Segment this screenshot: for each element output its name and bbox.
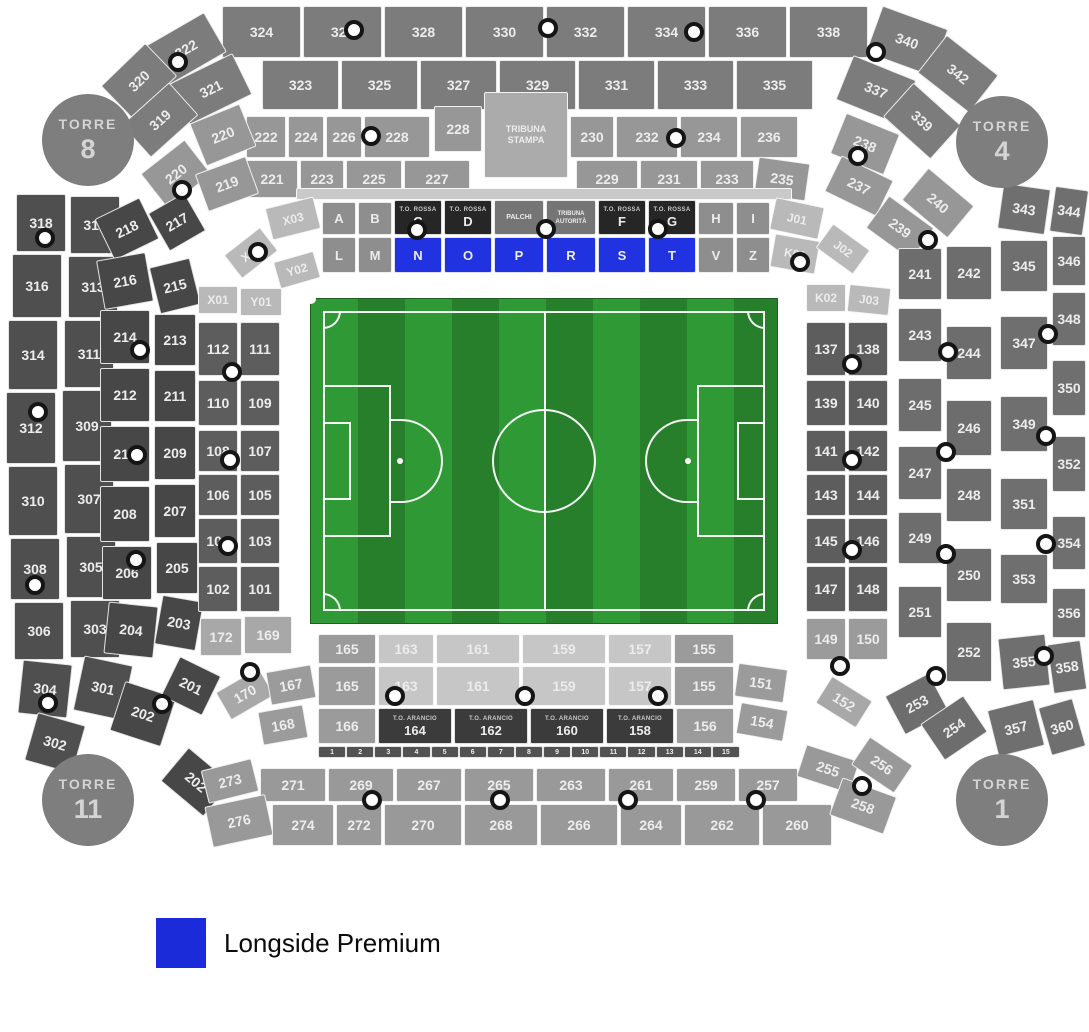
section-251[interactable]: 251 <box>898 586 942 638</box>
gate-marker-icon <box>1036 426 1056 446</box>
section-168[interactable]: 168 <box>257 704 308 745</box>
gate-marker-icon <box>35 228 55 248</box>
section-label: 140 <box>856 396 879 410</box>
section-102[interactable]: 102 <box>198 566 238 612</box>
section-label: 208 <box>113 507 136 521</box>
section-234[interactable]: 234 <box>680 116 738 158</box>
section-262[interactable]: 262 <box>684 804 760 846</box>
section-label: T <box>668 249 676 262</box>
section-335[interactable]: 335 <box>736 60 813 110</box>
section-152[interactable]: 152 <box>815 676 873 729</box>
section-label: 204 <box>119 622 144 638</box>
section-label: 309 <box>75 419 98 433</box>
section-label: 236 <box>757 130 780 144</box>
section-label: 166 <box>335 719 358 733</box>
section-label: 261 <box>629 778 652 792</box>
section-159[interactable]: 159 <box>522 634 606 664</box>
section-label: 270 <box>411 818 434 832</box>
section-x01[interactable]: X01 <box>198 286 238 314</box>
section-label: 157 <box>628 642 651 656</box>
gate-marker-icon <box>866 42 886 62</box>
strip-cell-12[interactable]: 12 <box>627 746 655 758</box>
gate-marker-icon <box>842 540 862 560</box>
section-172[interactable]: 172 <box>200 618 242 656</box>
strip-cell-6[interactable]: 6 <box>459 746 487 758</box>
section-label: J01 <box>786 211 808 227</box>
section-label: 224 <box>294 130 317 144</box>
section-label: 266 <box>567 818 590 832</box>
section-label: 156 <box>693 719 716 733</box>
section-label: 252 <box>957 645 980 659</box>
section-161[interactable]: 161 <box>436 634 520 664</box>
section-label: 138 <box>856 342 879 356</box>
section-271[interactable]: 271 <box>260 768 326 802</box>
section-label: S <box>618 249 627 262</box>
section-147[interactable]: 147 <box>806 566 846 612</box>
section-y02[interactable]: Y02 <box>273 251 321 289</box>
section-155[interactable]: 155 <box>674 666 734 706</box>
penalty-spot-left <box>397 458 403 464</box>
section-248[interactable]: 248 <box>946 468 992 522</box>
section-241[interactable]: 241 <box>898 248 942 300</box>
section-351[interactable]: 351 <box>1000 478 1048 530</box>
strip-cell-3[interactable]: 3 <box>374 746 402 758</box>
strip-cell-1[interactable]: 1 <box>318 746 346 758</box>
section-326[interactable]: 326 <box>303 6 382 58</box>
section-label: F <box>618 215 626 228</box>
section-label: 256 <box>868 753 895 778</box>
gate-marker-icon <box>666 128 686 148</box>
section-label: 243 <box>908 328 931 342</box>
section-label: 201 <box>177 675 204 698</box>
section-111[interactable]: 111 <box>240 322 280 376</box>
section-label: 305 <box>79 560 102 574</box>
section-label: 358 <box>1054 658 1079 675</box>
section-j02[interactable]: J02 <box>816 223 871 274</box>
section-224[interactable]: 224 <box>288 116 324 158</box>
section-264[interactable]: 264 <box>620 804 682 846</box>
section-160[interactable]: T.O. ARANCIO160 <box>530 708 604 744</box>
section-356[interactable]: 356 <box>1052 588 1086 638</box>
gate-marker-icon <box>25 575 45 595</box>
walkway <box>296 188 792 200</box>
section-label: 220 <box>210 124 237 146</box>
section-203[interactable]: 203 <box>154 595 204 652</box>
section-n[interactable]: N <box>394 237 442 273</box>
center-circle <box>492 409 596 513</box>
section-211[interactable]: 211 <box>154 370 196 422</box>
section-324[interactable]: 324 <box>222 6 301 58</box>
section-label: B <box>370 212 379 225</box>
section-t[interactable]: T <box>648 237 696 273</box>
section-label: 155 <box>692 642 715 656</box>
section-label: 311 <box>78 347 101 361</box>
section-158[interactable]: T.O. ARANCIO158 <box>606 708 674 744</box>
section-label: 145 <box>814 534 837 548</box>
strip-number: 7 <box>499 749 503 756</box>
section-label: 344 <box>1056 202 1081 219</box>
section-label: 233 <box>715 172 738 186</box>
section-caption: T.O. ROSSA <box>653 207 690 213</box>
section-y01[interactable]: Y01 <box>240 288 282 316</box>
section-325[interactable]: 325 <box>341 60 418 110</box>
section-215[interactable]: 215 <box>149 258 201 315</box>
strip-number: 5 <box>443 749 447 756</box>
section-s[interactable]: S <box>598 237 646 273</box>
section-336[interactable]: 336 <box>708 6 787 58</box>
torre-number: 4 <box>994 136 1009 167</box>
strip-cell-7[interactable]: 7 <box>487 746 515 758</box>
gate-marker-icon <box>28 402 48 422</box>
section-label: 144 <box>856 488 879 502</box>
section-345[interactable]: 345 <box>1000 240 1048 292</box>
section-352[interactable]: 352 <box>1052 436 1086 492</box>
section-label: 325 <box>368 78 391 92</box>
section-label: 147 <box>814 582 837 596</box>
section-323[interactable]: 323 <box>262 60 339 110</box>
section-label: 165 <box>335 642 358 656</box>
section-label: 267 <box>417 778 440 792</box>
gate-marker-icon <box>790 252 810 272</box>
strip-cell-11[interactable]: 11 <box>599 746 627 758</box>
section-306[interactable]: 306 <box>14 602 64 660</box>
strip-cell-9[interactable]: 9 <box>543 746 571 758</box>
section-101[interactable]: 101 <box>240 566 280 612</box>
section-label: 160 <box>556 724 578 737</box>
section-151[interactable]: 151 <box>734 663 788 704</box>
strip-cell-8[interactable]: 8 <box>515 746 543 758</box>
section-143[interactable]: 143 <box>806 474 846 516</box>
section-label: 164 <box>404 724 426 737</box>
section-h[interactable]: H <box>698 202 734 235</box>
strip-cell-2[interactable]: 2 <box>346 746 374 758</box>
section-274[interactable]: 274 <box>272 804 334 846</box>
section-343[interactable]: 343 <box>997 183 1051 235</box>
section-140[interactable]: 140 <box>848 380 888 426</box>
section-label: 262 <box>710 818 733 832</box>
section-label: 232 <box>635 130 658 144</box>
torre-4: TORRE4 <box>956 96 1048 188</box>
strip-cell-14[interactable]: 14 <box>684 746 712 758</box>
section-l[interactable]: L <box>322 237 356 273</box>
section-259[interactable]: 259 <box>676 768 736 802</box>
section-label: 250 <box>957 568 980 582</box>
section-label: 259 <box>694 778 717 792</box>
section-347[interactable]: 347 <box>1000 316 1048 370</box>
gate-marker-icon <box>936 442 956 462</box>
section-103[interactable]: 103 <box>240 518 280 564</box>
section-208[interactable]: 208 <box>100 486 150 542</box>
section-269[interactable]: 269 <box>328 768 394 802</box>
section-154[interactable]: 154 <box>736 702 789 742</box>
section-label: 327 <box>447 78 470 92</box>
section-label: 310 <box>21 494 44 508</box>
section-316[interactable]: 316 <box>12 254 62 318</box>
section-159[interactable]: 159 <box>522 666 606 706</box>
section-tribuna-stampa[interactable]: TRIBUNASTAMPA <box>484 92 568 178</box>
gate-marker-icon <box>222 362 242 382</box>
section-162[interactable]: T.O. ARANCIO162 <box>454 708 528 744</box>
section-216[interactable]: 216 <box>96 252 154 310</box>
section-label: X01 <box>207 294 228 306</box>
section-label: 102 <box>206 582 229 596</box>
gate-marker-icon <box>130 340 150 360</box>
section-270[interactable]: 270 <box>384 804 462 846</box>
section-165[interactable]: 165 <box>318 634 376 664</box>
section-label: 329 <box>526 78 549 92</box>
section-label: J03 <box>858 293 879 307</box>
section-252[interactable]: 252 <box>946 622 992 682</box>
strip-cell-13[interactable]: 13 <box>656 746 684 758</box>
strip-number: 15 <box>722 749 730 756</box>
section-155[interactable]: 155 <box>674 634 734 664</box>
section-label: 149 <box>814 632 837 646</box>
section-236[interactable]: 236 <box>740 116 798 158</box>
section-label: 162 <box>480 724 502 737</box>
section-314[interactable]: 314 <box>8 320 58 390</box>
section-label: 273 <box>217 771 243 790</box>
section-label: 339 <box>909 108 936 134</box>
section-label: 350 <box>1057 381 1080 395</box>
section-228[interactable]: 228 <box>434 106 482 152</box>
section-109[interactable]: 109 <box>240 380 280 426</box>
section-163[interactable]: 163 <box>378 634 434 664</box>
section-346[interactable]: 346 <box>1052 236 1086 286</box>
section-350[interactable]: 350 <box>1052 360 1086 416</box>
gate-marker-icon <box>362 790 382 810</box>
section-105[interactable]: 105 <box>240 474 280 516</box>
section-d[interactable]: T.O. ROSSAD <box>444 200 492 235</box>
section-204[interactable]: 204 <box>103 602 158 659</box>
strip-number: 3 <box>386 749 390 756</box>
section-label: AUTORITÀ <box>556 219 587 225</box>
gate-marker-icon <box>938 342 958 362</box>
gate-marker-icon <box>848 146 868 166</box>
section-107[interactable]: 107 <box>240 430 280 472</box>
gate-marker-icon <box>618 790 638 810</box>
section-328[interactable]: 328 <box>384 6 463 58</box>
section-330[interactable]: 330 <box>465 6 544 58</box>
section-166[interactable]: 166 <box>318 708 376 744</box>
section-label: 228 <box>446 122 469 136</box>
strip-cell-10[interactable]: 10 <box>571 746 599 758</box>
section-label: 312 <box>19 421 42 435</box>
section-213[interactable]: 213 <box>154 314 196 366</box>
section-267[interactable]: 267 <box>396 768 462 802</box>
section-169[interactable]: 169 <box>244 616 292 654</box>
section-354[interactable]: 354 <box>1052 516 1086 570</box>
section-358[interactable]: 358 <box>1047 640 1088 694</box>
section-141[interactable]: 141 <box>806 430 846 472</box>
legend: Longside Premium <box>156 918 441 968</box>
section-label: 105 <box>248 488 271 502</box>
section-label: 333 <box>684 78 707 92</box>
section-label: 241 <box>908 267 931 281</box>
section-353[interactable]: 353 <box>1000 554 1048 604</box>
gate-marker-icon <box>1036 534 1056 554</box>
section-157[interactable]: 157 <box>608 634 672 664</box>
section-label: 215 <box>162 276 188 295</box>
section-label: 222 <box>254 130 277 144</box>
section-266[interactable]: 266 <box>540 804 618 846</box>
section-label: 161 <box>466 679 489 693</box>
gate-marker-icon <box>746 790 766 810</box>
section-243[interactable]: 243 <box>898 308 942 362</box>
section-label: 301 <box>90 679 116 698</box>
section-label: A <box>334 212 343 225</box>
section-226[interactable]: 226 <box>326 116 362 158</box>
torre-label: TORRE <box>973 776 1032 792</box>
section-label: K02 <box>815 292 837 304</box>
section-357[interactable]: 357 <box>987 699 1045 757</box>
section-label: 101 <box>248 582 271 596</box>
torre-number: 11 <box>74 794 103 825</box>
section-label: 340 <box>894 30 921 51</box>
section-label: 319 <box>147 107 174 133</box>
gate-marker-icon <box>218 536 238 556</box>
section-label: 251 <box>908 605 931 619</box>
section-106[interactable]: 106 <box>198 474 238 516</box>
section-label: 353 <box>1012 572 1035 586</box>
section-217[interactable]: 217 <box>148 192 206 251</box>
section-360[interactable]: 360 <box>1038 698 1086 756</box>
section-caption: T.O. ARANCIO <box>393 716 437 722</box>
section-label: 170 <box>231 682 258 706</box>
torre-number: 1 <box>994 794 1009 825</box>
section-149[interactable]: 149 <box>806 618 846 660</box>
section-312[interactable]: 312 <box>6 392 56 464</box>
strip-cell-5[interactable]: 5 <box>431 746 459 758</box>
section-242[interactable]: 242 <box>946 246 992 300</box>
section-label: 336 <box>736 25 759 39</box>
section-label: 213 <box>163 333 186 347</box>
section-label: V <box>712 249 721 262</box>
section-110[interactable]: 110 <box>198 380 238 426</box>
section-label: 258 <box>850 795 877 816</box>
section-144[interactable]: 144 <box>848 474 888 516</box>
torre-8: TORRE8 <box>42 94 134 186</box>
section-label: 111 <box>249 342 271 356</box>
section-label: H <box>711 212 720 225</box>
section-label: 334 <box>655 25 678 39</box>
section-label: 268 <box>489 818 512 832</box>
section-139[interactable]: 139 <box>806 380 846 426</box>
section-label: 335 <box>763 78 786 92</box>
section-label: 143 <box>814 488 837 502</box>
section-label: 110 <box>207 396 230 410</box>
strip-cell-15[interactable]: 15 <box>712 746 740 758</box>
section-label: M <box>370 249 381 262</box>
gate-marker-icon <box>830 656 850 676</box>
strip-cell-4[interactable]: 4 <box>402 746 430 758</box>
section-137[interactable]: 137 <box>806 322 846 376</box>
section-caption: T.O. ARANCIO <box>469 716 513 722</box>
section-label: 337 <box>863 79 890 101</box>
section-m[interactable]: M <box>358 237 392 273</box>
section-x03[interactable]: X03 <box>265 196 321 240</box>
section-332[interactable]: 332 <box>546 6 625 58</box>
section-label: 159 <box>552 642 575 656</box>
section-b[interactable]: B <box>358 202 392 235</box>
section-268[interactable]: 268 <box>464 804 538 846</box>
section-145[interactable]: 145 <box>806 518 846 564</box>
section-338[interactable]: 338 <box>789 6 868 58</box>
section-a[interactable]: A <box>322 202 356 235</box>
section-209[interactable]: 209 <box>154 426 196 480</box>
section-148[interactable]: 148 <box>848 566 888 612</box>
section-label: 274 <box>291 818 314 832</box>
section-label: R <box>566 249 575 262</box>
section-165[interactable]: 165 <box>318 666 376 706</box>
section-label: 242 <box>957 266 980 280</box>
section-label: 355 <box>1012 654 1037 670</box>
section-156[interactable]: 156 <box>676 708 734 744</box>
torre-label: TORRE <box>59 116 118 132</box>
section-label: 163 <box>394 642 417 656</box>
section-label: 218 <box>113 218 140 241</box>
section-label: 235 <box>769 170 794 187</box>
section-150[interactable]: 150 <box>848 618 888 660</box>
section-label: 276 <box>226 812 252 831</box>
section-label: 320 <box>126 68 153 94</box>
section-label: 225 <box>362 172 385 186</box>
section-label: 332 <box>574 25 597 39</box>
torre-1: TORRE1 <box>956 754 1048 846</box>
section-label: 323 <box>289 78 312 92</box>
legend-swatch-longside-premium <box>156 918 206 968</box>
section-label: 150 <box>856 632 879 646</box>
section-161[interactable]: 161 <box>436 666 520 706</box>
strip-number: 12 <box>638 749 646 756</box>
section-caption: T.O. ARANCIO <box>618 716 662 722</box>
section-164[interactable]: T.O. ARANCIO164 <box>378 708 452 744</box>
section-310[interactable]: 310 <box>8 466 58 536</box>
section-f[interactable]: T.O. ROSSAF <box>598 200 646 235</box>
section-z[interactable]: Z <box>736 237 770 273</box>
section-331[interactable]: 331 <box>578 60 655 110</box>
gate-marker-icon <box>344 20 364 40</box>
section-207[interactable]: 207 <box>154 484 196 538</box>
section-212[interactable]: 212 <box>100 368 150 422</box>
section-167[interactable]: 167 <box>265 664 316 705</box>
section-260[interactable]: 260 <box>762 804 832 846</box>
section-label: 209 <box>163 446 186 460</box>
section-label: 271 <box>281 778 304 792</box>
section-label: TRIBUNA <box>558 211 585 217</box>
section-k02[interactable]: K02 <box>806 284 846 312</box>
section-r[interactable]: R <box>546 237 596 273</box>
section-205[interactable]: 205 <box>156 542 198 594</box>
section-label: 308 <box>23 562 46 576</box>
section-333[interactable]: 333 <box>657 60 734 110</box>
section-label: Y02 <box>285 261 309 278</box>
section-i[interactable]: I <box>736 202 770 235</box>
section-263[interactable]: 263 <box>536 768 606 802</box>
section-245[interactable]: 245 <box>898 378 942 432</box>
section-j03[interactable]: J03 <box>847 284 892 316</box>
strip-number: 13 <box>666 749 674 756</box>
torre-label: TORRE <box>973 118 1032 134</box>
section-344[interactable]: 344 <box>1049 186 1089 236</box>
strip-number: 4 <box>415 749 419 756</box>
section-label: 246 <box>957 421 980 435</box>
section-label: 234 <box>697 130 720 144</box>
section-p[interactable]: P <box>494 237 544 273</box>
section-230[interactable]: 230 <box>570 116 614 158</box>
section-v[interactable]: V <box>698 237 734 273</box>
section-272[interactable]: 272 <box>336 804 382 846</box>
section-o[interactable]: O <box>444 237 492 273</box>
